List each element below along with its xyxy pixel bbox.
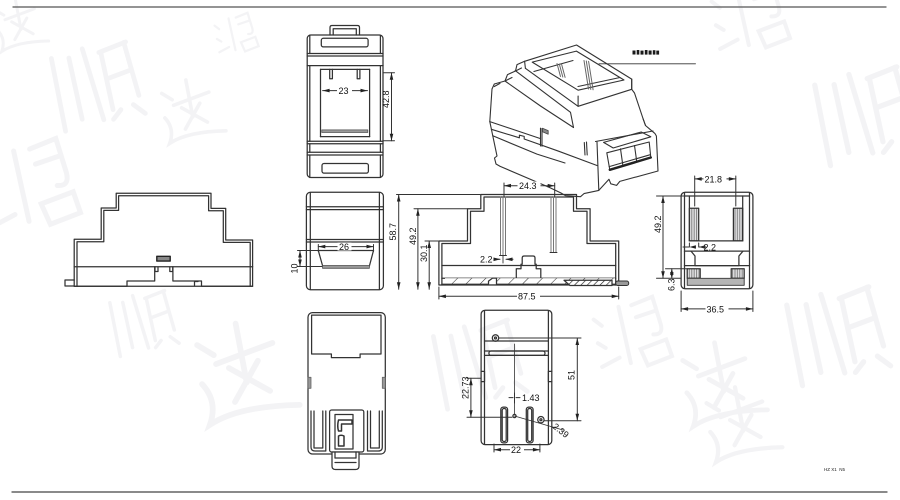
svg-text:24.3: 24.3 xyxy=(519,181,537,191)
svg-text:42.8: 42.8 xyxy=(381,90,391,108)
svg-text:22: 22 xyxy=(511,445,521,455)
svg-text:22.73: 22.73 xyxy=(460,376,470,399)
svg-text:21.8: 21.8 xyxy=(705,174,723,184)
svg-text:87.5: 87.5 xyxy=(518,292,536,302)
svg-text:6.3: 6.3 xyxy=(666,278,676,291)
svg-text:58.7: 58.7 xyxy=(388,223,398,241)
svg-text:2.2: 2.2 xyxy=(480,255,493,265)
svg-text:2.39: 2.39 xyxy=(551,421,571,440)
svg-text:2.2: 2.2 xyxy=(704,243,717,253)
svg-text:51: 51 xyxy=(567,370,577,380)
svg-text:49.2: 49.2 xyxy=(653,215,663,233)
svg-text:36.5: 36.5 xyxy=(707,304,725,314)
svg-text:26: 26 xyxy=(339,242,349,252)
svg-text:49.2: 49.2 xyxy=(408,227,418,245)
svg-text:10: 10 xyxy=(290,263,300,273)
svg-text:1.43: 1.43 xyxy=(522,393,540,403)
svg-text:23: 23 xyxy=(339,86,349,96)
svg-text:30.1: 30.1 xyxy=(419,244,429,262)
svg-text:HZ X1 N5: HZ X1 N5 xyxy=(824,467,846,472)
